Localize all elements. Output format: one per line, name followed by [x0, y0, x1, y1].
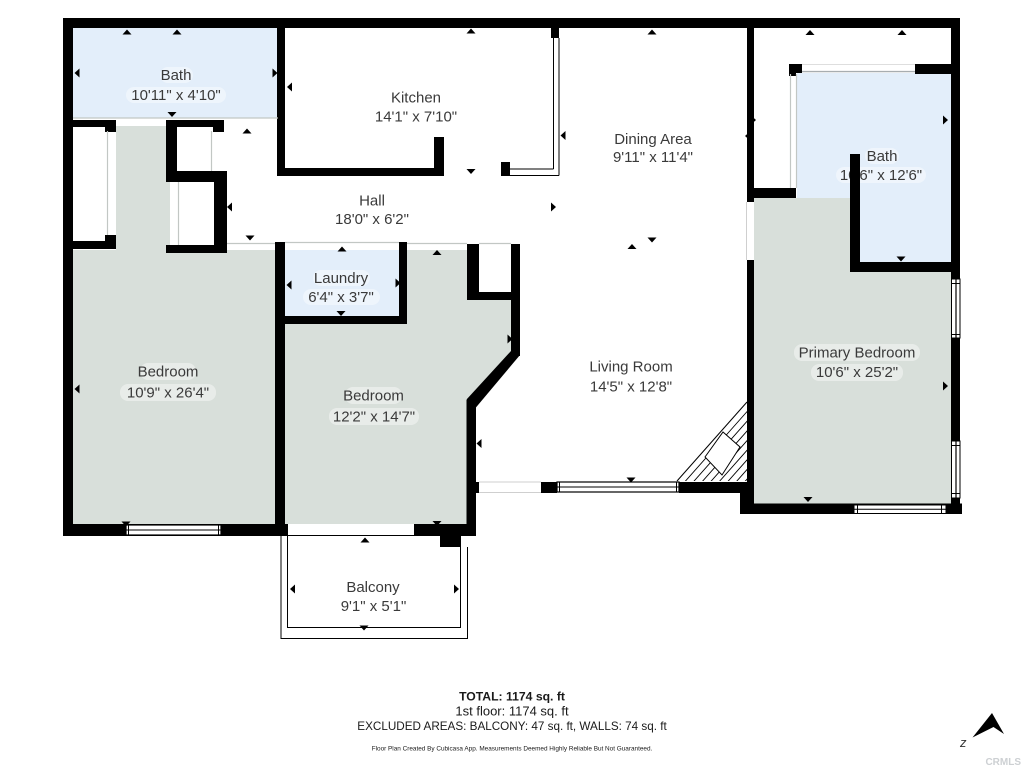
svg-text:Primary Bedroom: Primary Bedroom [799, 345, 916, 362]
svg-text:Hall: Hall [359, 193, 385, 210]
svg-text:Floor Plan Created By Cubicasa: Floor Plan Created By Cubicasa App. Meas… [372, 746, 653, 753]
svg-text:6'4" x 3'7": 6'4" x 3'7" [308, 289, 374, 306]
svg-text:Balcony: Balcony [346, 579, 400, 596]
svg-text:9'1" x 5'1": 9'1" x 5'1" [341, 598, 407, 615]
svg-text:CRMLS: CRMLS [985, 757, 1021, 768]
svg-text:9'11" x 11'4": 9'11" x 11'4" [613, 149, 693, 166]
svg-text:10'9" x 26'4": 10'9" x 26'4" [127, 385, 209, 402]
svg-text:Bedroom: Bedroom [138, 364, 199, 381]
svg-text:10'11" x 4'10": 10'11" x 4'10" [131, 87, 221, 104]
svg-text:EXCLUDED AREAS: BALCONY: 47 sq: EXCLUDED AREAS: BALCONY: 47 sq. ft, WALL… [357, 720, 667, 733]
svg-text:18'0" x 6'2": 18'0" x 6'2" [335, 211, 409, 228]
svg-text:14'5" x 12'8": 14'5" x 12'8" [590, 379, 672, 396]
svg-text:14'1" x 7'10": 14'1" x 7'10" [375, 109, 457, 126]
svg-text:Bath: Bath [161, 67, 192, 84]
svg-text:10'6" x 25'2": 10'6" x 25'2" [816, 364, 898, 381]
svg-text:Bath: Bath [867, 148, 898, 165]
svg-text:Kitchen: Kitchen [391, 90, 441, 107]
svg-text:Laundry: Laundry [314, 270, 369, 287]
svg-text:Dining Area: Dining Area [614, 131, 692, 148]
svg-text:TOTAL: 1174 sq. ft: TOTAL: 1174 sq. ft [459, 690, 565, 704]
svg-text:Living Room: Living Room [589, 359, 672, 376]
svg-text:Bedroom: Bedroom [343, 388, 404, 405]
svg-text:12'2" x 14'7": 12'2" x 14'7" [333, 409, 415, 426]
svg-text:z: z [959, 735, 967, 750]
svg-text:1st floor: 1174 sq. ft: 1st floor: 1174 sq. ft [455, 704, 569, 719]
